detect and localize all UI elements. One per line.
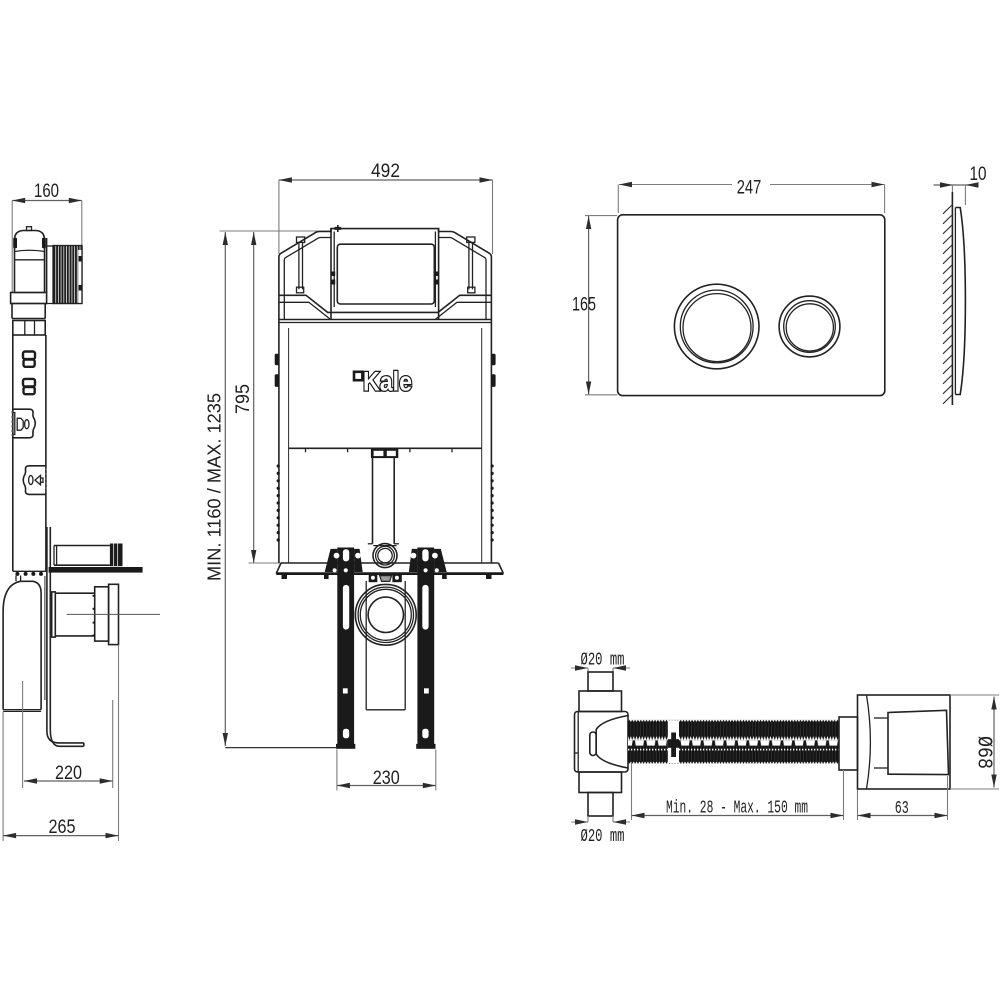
svg-text:492: 492 bbox=[371, 161, 400, 182]
svg-text:Kale: Kale bbox=[363, 367, 412, 397]
svg-text:10: 10 bbox=[970, 164, 987, 185]
svg-text:795: 795 bbox=[233, 384, 254, 414]
svg-text:Min. 28 - Max. 150 mm: Min. 28 - Max. 150 mm bbox=[666, 799, 808, 819]
svg-text:230: 230 bbox=[373, 768, 400, 789]
svg-text:220: 220 bbox=[55, 763, 82, 784]
svg-text:265: 265 bbox=[49, 817, 76, 838]
svg-text:160: 160 bbox=[34, 181, 59, 202]
svg-text:MIN. 1160 / MAX. 1235: MIN. 1160 / MAX. 1235 bbox=[204, 393, 225, 581]
svg-text:63: 63 bbox=[895, 799, 909, 819]
svg-text:Ø68: Ø68 bbox=[972, 736, 995, 769]
svg-text:247: 247 bbox=[737, 177, 762, 199]
svg-text:165: 165 bbox=[572, 295, 596, 316]
svg-text:Ø20 mm: Ø20 mm bbox=[581, 827, 625, 847]
